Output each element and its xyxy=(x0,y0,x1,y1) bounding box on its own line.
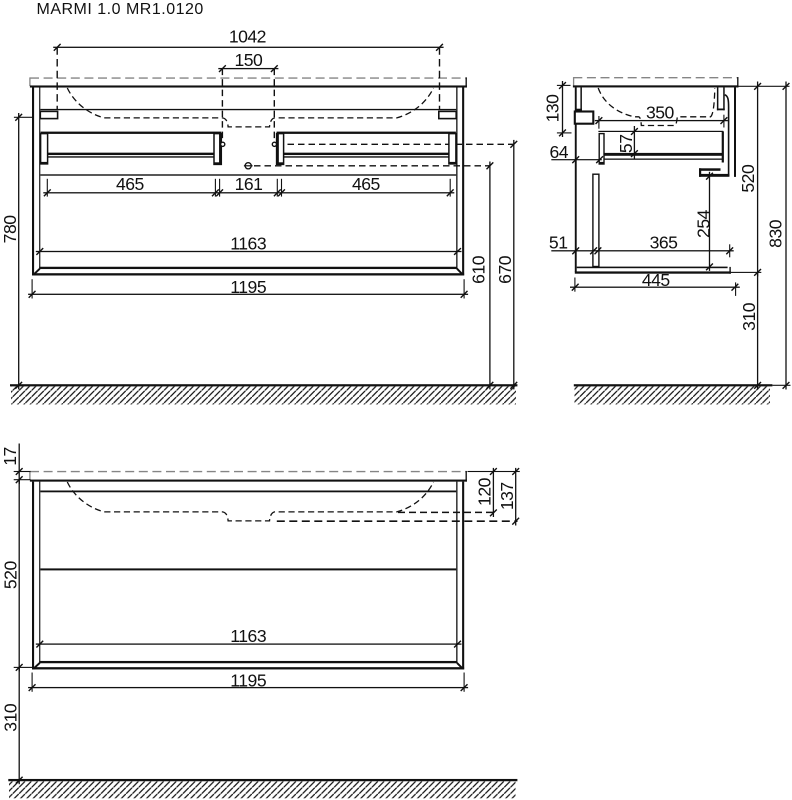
svg-text:MARMI 1.0 MR1.0120: MARMI 1.0 MR1.0120 xyxy=(37,1,204,18)
svg-text:51: 51 xyxy=(549,232,568,252)
svg-text:1195: 1195 xyxy=(230,670,267,690)
svg-text:130: 130 xyxy=(543,94,563,123)
svg-text:830: 830 xyxy=(766,219,786,248)
svg-text:445: 445 xyxy=(642,270,671,290)
svg-text:137: 137 xyxy=(497,482,517,510)
svg-text:254: 254 xyxy=(693,209,713,238)
svg-text:57: 57 xyxy=(616,135,636,154)
svg-text:310: 310 xyxy=(0,703,20,732)
svg-text:610: 610 xyxy=(468,255,488,284)
svg-text:1042: 1042 xyxy=(229,27,266,47)
svg-text:120: 120 xyxy=(475,477,495,506)
svg-text:1163: 1163 xyxy=(230,626,267,646)
svg-text:1195: 1195 xyxy=(230,277,267,297)
svg-text:780: 780 xyxy=(0,215,20,244)
svg-text:17: 17 xyxy=(0,447,20,466)
svg-text:465: 465 xyxy=(116,174,145,194)
svg-text:670: 670 xyxy=(495,255,515,284)
svg-text:64: 64 xyxy=(550,142,569,162)
svg-text:1163: 1163 xyxy=(230,234,267,254)
svg-text:350: 350 xyxy=(646,103,675,123)
svg-text:520: 520 xyxy=(738,164,758,193)
svg-text:161: 161 xyxy=(235,174,263,194)
svg-text:150: 150 xyxy=(234,50,263,70)
svg-text:310: 310 xyxy=(739,302,759,331)
svg-text:365: 365 xyxy=(650,232,679,252)
svg-text:520: 520 xyxy=(0,561,20,590)
svg-text:465: 465 xyxy=(352,174,381,194)
